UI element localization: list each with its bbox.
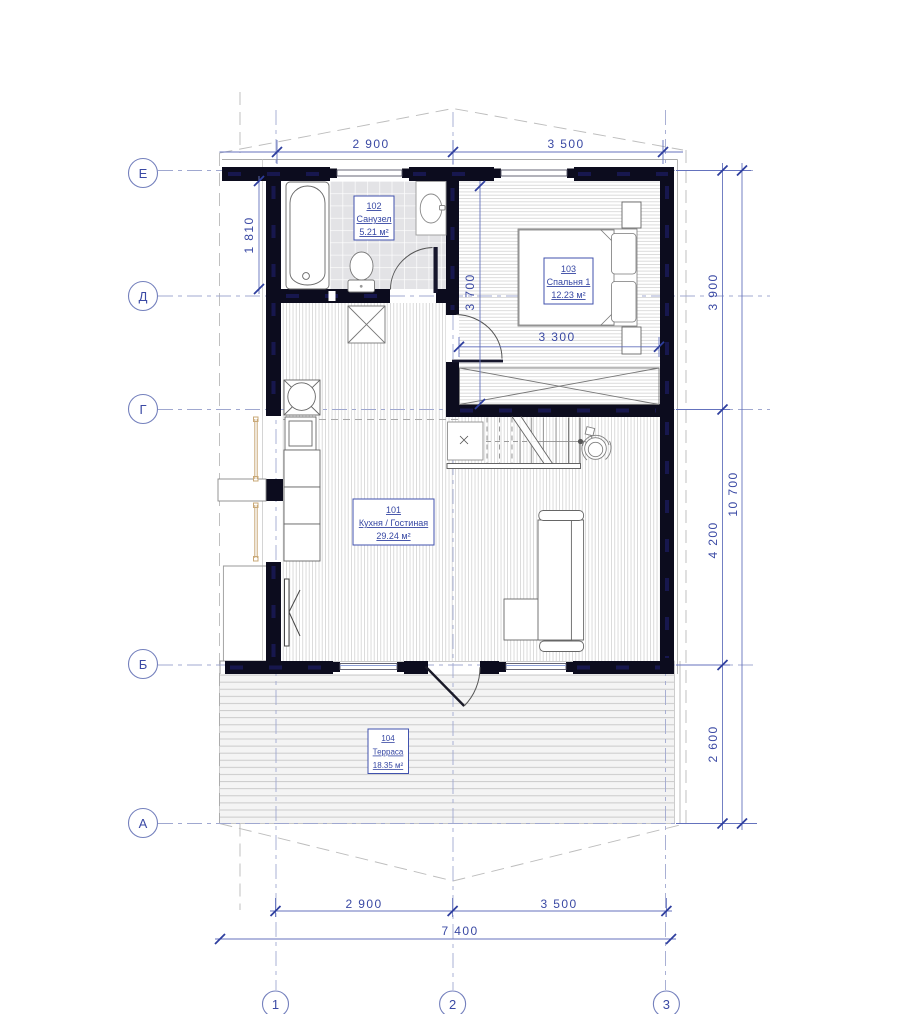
svg-text:3 300: 3 300 <box>538 330 575 344</box>
svg-text:3 500: 3 500 <box>540 897 577 911</box>
svg-text:18.35 м²: 18.35 м² <box>373 761 404 770</box>
svg-text:Д: Д <box>139 289 148 304</box>
svg-text:4 200: 4 200 <box>706 521 720 558</box>
svg-text:Санузел: Санузел <box>356 214 391 224</box>
svg-text:103: 103 <box>561 264 576 274</box>
svg-text:2 900: 2 900 <box>352 137 389 151</box>
svg-text:2 600: 2 600 <box>706 725 720 762</box>
svg-text:2: 2 <box>449 997 456 1012</box>
svg-text:104: 104 <box>381 734 395 743</box>
svg-text:2 900: 2 900 <box>345 897 382 911</box>
svg-text:3 900: 3 900 <box>706 273 720 310</box>
svg-text:1: 1 <box>272 997 279 1012</box>
svg-text:Спальня 1: Спальня 1 <box>547 277 591 287</box>
svg-text:Г: Г <box>139 402 146 417</box>
svg-text:10 700: 10 700 <box>726 471 740 516</box>
svg-text:3 500: 3 500 <box>547 137 584 151</box>
svg-text:А: А <box>139 816 148 831</box>
svg-text:Е: Е <box>139 166 148 181</box>
svg-text:Кухня / Гостиная: Кухня / Гостиная <box>359 518 428 528</box>
svg-text:5.21 м²: 5.21 м² <box>359 227 388 237</box>
svg-text:Б: Б <box>139 657 148 672</box>
svg-text:29.24 м²: 29.24 м² <box>376 531 410 541</box>
svg-text:1 810: 1 810 <box>242 216 256 253</box>
svg-text:3: 3 <box>663 997 670 1012</box>
svg-text:102: 102 <box>366 201 381 211</box>
svg-text:12.23 м²: 12.23 м² <box>551 290 585 300</box>
svg-text:Терраса: Терраса <box>373 748 404 757</box>
svg-text:101: 101 <box>386 505 401 515</box>
svg-text:7 400: 7 400 <box>441 924 478 938</box>
svg-text:3 700: 3 700 <box>463 273 477 310</box>
